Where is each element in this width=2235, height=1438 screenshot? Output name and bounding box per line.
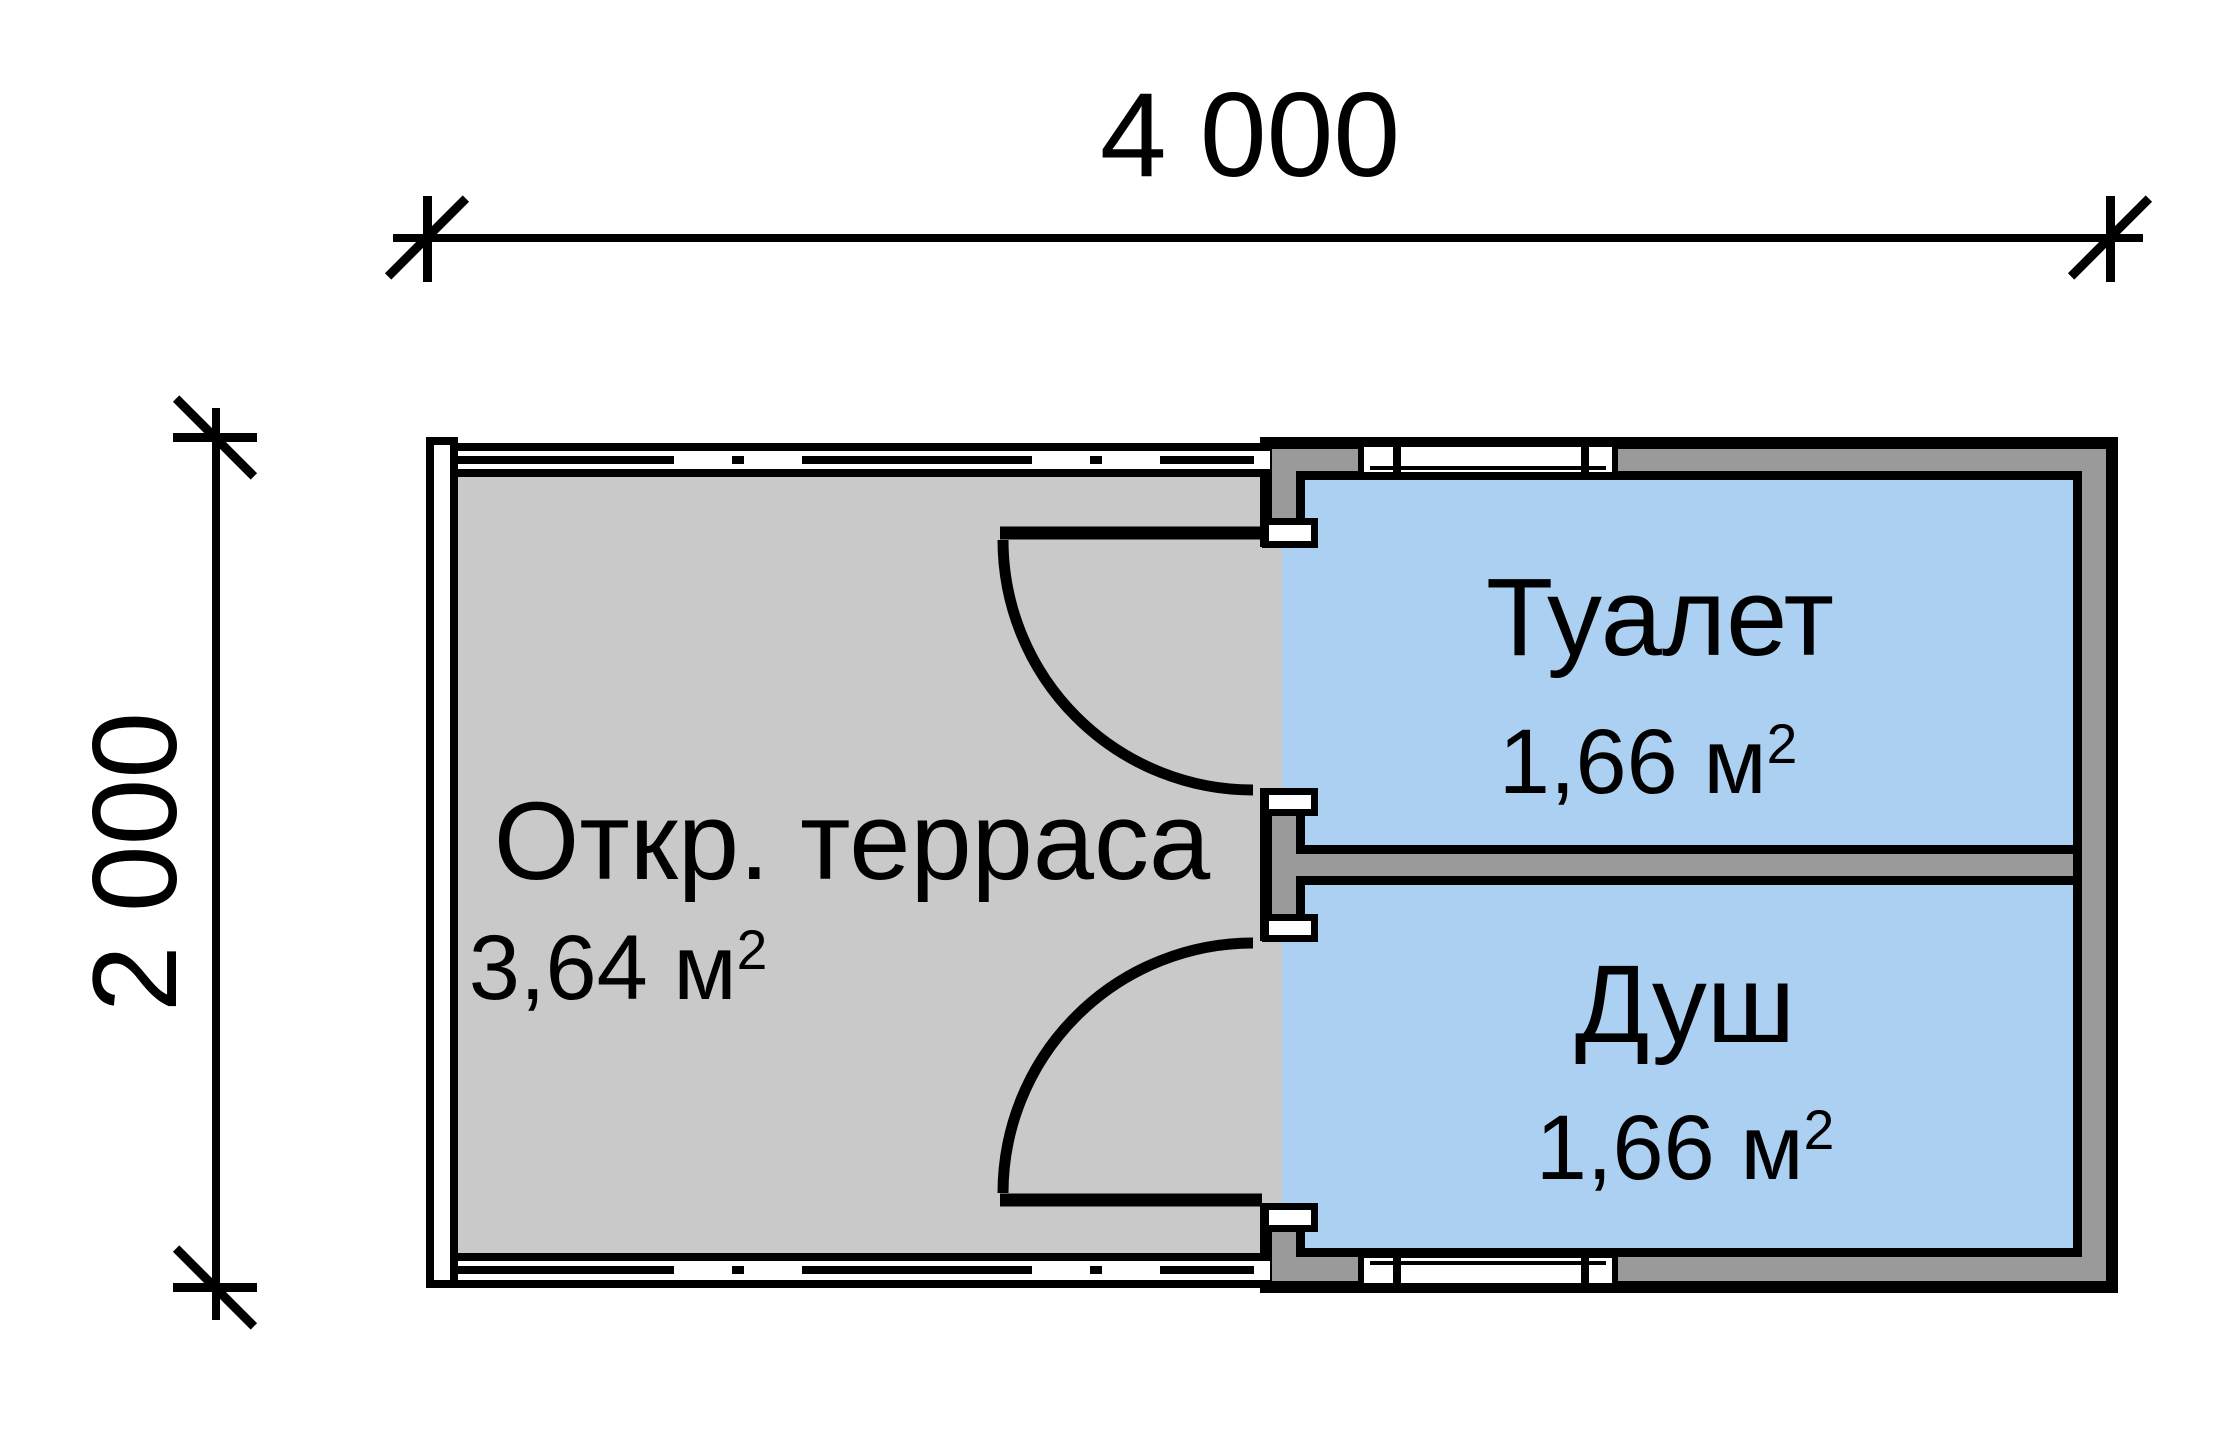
toilet-name-label: Туалет <box>1486 563 1834 673</box>
floor-plan-canvas: 4 000 2 000 Откр. т <box>0 0 2235 1438</box>
shower-area-exponent: 2 <box>1804 1099 1835 1161</box>
terrace-area-value: 3,64 м <box>469 917 737 1019</box>
shower-door-swing-arc <box>1003 943 1253 1193</box>
shower-area-value: 1,66 м <box>1536 1097 1804 1199</box>
terrace-name-label: Откр. терраса <box>494 787 1210 897</box>
terrace-area-label: 3,64 м2 <box>469 922 768 1014</box>
toilet-area-value: 1,66 м <box>1499 711 1767 813</box>
terrace-area-exponent: 2 <box>737 919 768 981</box>
shower-area-label: 1,66 м2 <box>1536 1102 1835 1194</box>
shower-name-label: Душ <box>1575 950 1795 1060</box>
toilet-area-label: 1,66 м2 <box>1499 716 1798 808</box>
door-swings-layer <box>0 0 2235 1438</box>
toilet-door-swing-arc <box>1003 540 1253 790</box>
toilet-area-exponent: 2 <box>1767 713 1798 775</box>
